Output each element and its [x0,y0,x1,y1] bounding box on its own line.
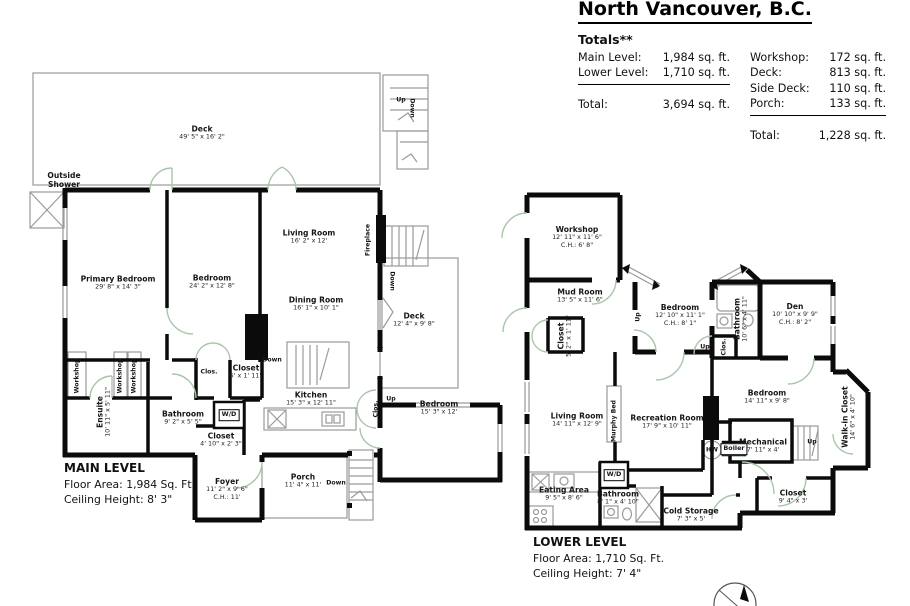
label-bathroom: Bathroom10' 6" x 4' 11" [733,296,750,342]
row-value: 3,694 sq. ft. [663,97,730,112]
label-clos: Clos. [372,401,379,418]
totals-row: Deck: 813 sq. ft. [750,65,886,80]
row-label: Lower Level: [578,65,648,80]
label-living-room: Living Room14' 11" x 12' 9" [551,412,604,429]
totals-divider [578,84,730,85]
totals-heading: Totals** [578,32,900,47]
row-value: 110 sq. ft. [829,81,886,96]
level-ceiling-height: Ceiling Height: 7' 4" [533,566,664,581]
label-up: Up [700,343,709,350]
totals-row: Side Deck: 110 sq. ft. [750,81,886,96]
label-bedroom: Bedroom15' 3" x 12' [420,400,458,417]
label-foyer: Foyer11' 2" x 9' 6"C.H.: 11' [206,477,248,501]
label-dining-room: Dining Room16' 1" x 10' 1" [289,296,344,313]
label-up: Up [386,395,395,402]
label-kitchen: Kitchen15' 3" x 12' 11" [286,391,336,408]
row-value: 172 sq. ft. [829,50,886,65]
label-workshop: Workshop [130,359,137,394]
label-workshop: Workshop12' 11" x 11' 6"C.H.: 6' 8" [552,225,602,249]
row-value: 813 sq. ft. [829,65,886,80]
label-boiler: Boiler [720,443,747,455]
label-ensuite: Ensuite10' 11" x 5' 11" [96,387,113,437]
totals-panel: North Vancouver, B.C. Totals** Main Leve… [578,0,900,143]
row-label: Workshop: [750,50,809,65]
level-title: LOWER LEVEL [533,534,664,551]
row-label: Total: [750,128,780,143]
totals-row: Porch: 133 sq. ft. [750,96,886,111]
label-porch: Porch11' 4" x 11' [285,473,322,490]
label-outside-shower: Outside Shower [40,171,88,189]
label-hw: HW [706,446,718,453]
compass-icon [714,583,756,606]
row-label: Side Deck: [750,81,810,96]
label-w-d: W/D [219,409,240,421]
floorplan-page: North Vancouver, B.C. Totals** Main Leve… [0,0,910,606]
label-cold-storage: Cold Storage7' 3" x 5' [663,507,718,524]
label-primary-bedroom: Primary Bedroom29' 8" x 14' 3" [81,275,156,292]
label-mud-room: Mud Room13' 5" x 11' 6" [557,288,603,305]
totals-row: Main Level: 1,984 sq. ft. [578,50,730,65]
label-up: Up [396,96,405,103]
label-den: Den10' 10" x 9' 9"C.H.: 8' 2" [772,302,818,326]
totals-total-row: Total: 3,694 sq. ft. [578,97,730,112]
label-deck: Deck12' 4" x 9' 8" [393,312,435,329]
main-level-note: MAIN LEVEL Floor Area: 1,984 Sq. Ft. Cei… [64,460,195,508]
label-workshop: Workshop [73,359,80,394]
page-title: North Vancouver, B.C. [578,0,812,24]
totals-row: Workshop: 172 sq. ft. [750,50,886,65]
row-label: Porch: [750,96,785,111]
label-up: Up [807,438,816,445]
level-title: MAIN LEVEL [64,460,195,477]
label-recreation-room: Recreation Room17' 9" x 10' 11" [630,414,703,431]
label-closet: Closet4' 10" x 2' 3" [200,432,242,449]
level-ceiling-height: Ceiling Height: 8' 3" [64,492,195,507]
totals-divider [750,115,886,116]
label-down: Down [326,479,346,486]
label-walk-in-closet: Walk-in Closet14' 6" x 4' 10" [841,386,858,447]
label-bathroom: Bathroom8' 1" x 4' 10" [597,490,639,507]
row-value: 1,228 sq. ft. [819,128,886,143]
row-value: 1,710 sq. ft. [663,65,730,80]
label-fireplace: Fireplace [364,224,371,256]
label-living-room: Living Room16' 2" x 12' [283,229,336,246]
row-label: Total: [578,97,608,112]
row-label: Main Level: [578,50,642,65]
label-down: Down [262,356,282,363]
label-up: Up [634,312,641,321]
solid-blocks [245,215,748,508]
row-label: Deck: [750,65,782,80]
totals-row: Lower Level: 1,710 sq. ft. [578,65,730,80]
label-eating-area: Eating Area9' 5" x 8' 6" [539,486,589,503]
row-value: 1,984 sq. ft. [663,50,730,65]
label-bedroom: Bedroom14' 11" x 9' 8" [744,389,790,406]
label-deck: Deck49' 5" x 16' 2" [179,125,225,142]
label-closet: Closet5' x 1' 11" [230,364,263,381]
totals-left-column: Main Level: 1,984 sq. ft. Lower Level: 1… [578,50,730,143]
level-floor-area: Floor Area: 1,984 Sq. Ft. [64,477,195,492]
label-murphy-bed: Murphy Bed [610,400,617,442]
label-closet: Closet9' 4" x 3' [779,489,808,506]
label-closet: Closet5' 2" x 1' 11" [557,315,574,357]
label-bedroom: Bedroom12' 10" x 11' 1"C.H.: 8' 1" [655,303,705,327]
totals-total-row: Total: 1,228 sq. ft. [750,128,886,143]
label-bathroom: Bathroom9' 2" x 5' 5" [162,410,204,427]
lower-level-note: LOWER LEVEL Floor Area: 1,710 Sq. Ft. Ce… [533,534,664,582]
label-workshop: Workshop [116,359,123,394]
totals-right-column: Workshop: 172 sq. ft. Deck: 813 sq. ft. … [750,50,886,143]
totals-columns: Main Level: 1,984 sq. ft. Lower Level: 1… [578,50,900,143]
label-down: Down [408,98,415,118]
level-floor-area: Floor Area: 1,710 Sq. Ft. [533,551,664,566]
label-w-d: W/D [604,469,625,481]
row-value: 133 sq. ft. [829,96,886,111]
label-clos: Clos. [720,339,727,356]
label-down: Down [388,271,395,291]
label-bedroom: Bedroom24' 2" x 12' 8" [189,274,235,291]
label-clos: Clos. [201,368,218,375]
